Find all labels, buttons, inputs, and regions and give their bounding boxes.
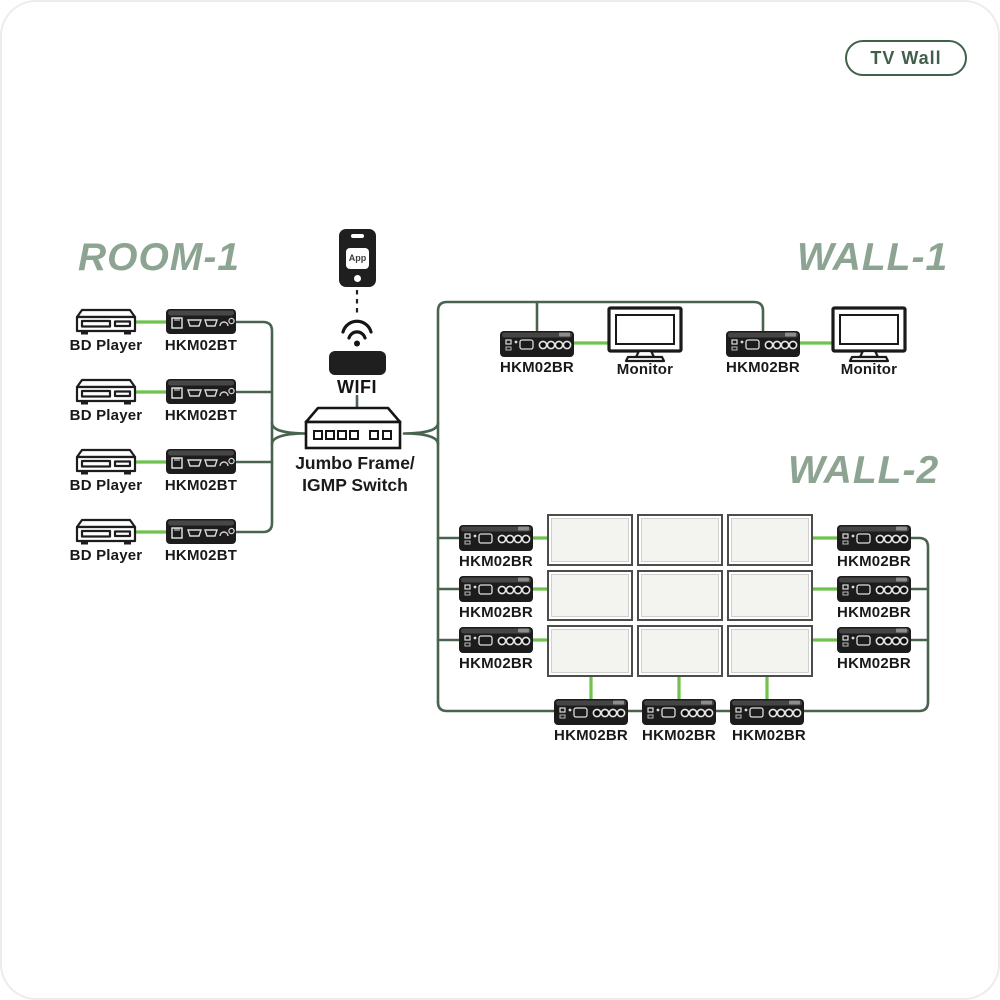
hkm02bt-label: HKM02BT <box>153 477 249 494</box>
video-wall-panel <box>637 625 723 677</box>
monitor-icon <box>607 306 683 364</box>
video-wall-panel-screen <box>551 574 629 618</box>
bd-player-icon <box>73 305 139 339</box>
hkm02br-label: HKM02BR <box>631 727 727 744</box>
hkm02bt-transmitter-icon <box>165 518 237 545</box>
video-wall-panel <box>727 570 813 622</box>
video-wall-panel-screen <box>731 574 809 618</box>
video-wall-panel <box>637 514 723 566</box>
hkm02bt-transmitter-icon <box>165 308 237 335</box>
wall1-title: WALL-1 <box>797 236 948 280</box>
bd-player-label: BD Player <box>58 477 154 494</box>
hkm02bt-label: HKM02BT <box>153 547 249 564</box>
hkm02br-receiver-icon <box>458 575 534 603</box>
monitor-label: Monitor <box>821 361 917 378</box>
monitor-label: Monitor <box>597 361 693 378</box>
hkm02br-receiver-icon <box>641 698 717 726</box>
hkm02br-receiver-icon <box>836 524 912 552</box>
bd-player-label: BD Player <box>58 547 154 564</box>
connection-wires <box>0 0 1000 1000</box>
switch-label-line1: Jumbo Frame/ <box>295 453 415 473</box>
video-wall-panel-screen <box>641 629 719 673</box>
bd-player-icon <box>73 375 139 409</box>
hkm02br-label: HKM02BR <box>448 553 544 570</box>
video-wall-panel-screen <box>731 518 809 562</box>
hkm02br-label: HKM02BR <box>448 604 544 621</box>
video-wall-grid <box>547 514 813 677</box>
video-wall-panel-screen <box>641 574 719 618</box>
diagram-canvas: TV Wall ROOM-1 WALL-1 WALL-2 BD Player H… <box>0 0 1000 1000</box>
video-wall-panel <box>547 625 633 677</box>
video-wall-panel-screen <box>731 629 809 673</box>
hkm02br-receiver-icon <box>725 330 801 358</box>
switch-label-line2: IGMP Switch <box>302 475 408 495</box>
wifi-router-icon <box>329 351 386 375</box>
switch-label: Jumbo Frame/ IGMP Switch <box>280 452 430 496</box>
hkm02br-label: HKM02BR <box>826 553 922 570</box>
monitor-icon <box>831 306 907 364</box>
phone-home-button <box>354 275 361 282</box>
hkm02br-label: HKM02BR <box>489 359 585 376</box>
video-wall-panel-screen <box>641 518 719 562</box>
tv-wall-badge-label: TV Wall <box>870 48 941 69</box>
tv-wall-badge: TV Wall <box>845 40 967 76</box>
hkm02br-receiver-icon <box>458 524 534 552</box>
hkm02br-label: HKM02BR <box>826 604 922 621</box>
hkm02br-label: HKM02BR <box>448 655 544 672</box>
smartphone-icon: App <box>339 229 376 287</box>
hkm02bt-label: HKM02BT <box>153 337 249 354</box>
app-button: App <box>346 248 369 269</box>
room1-title: ROOM-1 <box>78 236 240 280</box>
bd-player-label: BD Player <box>58 407 154 424</box>
wall2-title: WALL-2 <box>788 449 939 493</box>
bd-player-label: BD Player <box>58 337 154 354</box>
phone-speaker-slot <box>351 234 364 238</box>
hkm02br-receiver-icon <box>836 626 912 654</box>
hkm02br-label: HKM02BR <box>543 727 639 744</box>
hkm02bt-label: HKM02BT <box>153 407 249 424</box>
hkm02br-receiver-icon <box>836 575 912 603</box>
hkm02br-receiver-icon <box>553 698 629 726</box>
bd-player-icon <box>73 515 139 549</box>
bd-player-icon <box>73 445 139 479</box>
hkm02br-receiver-icon <box>499 330 575 358</box>
video-wall-panel-screen <box>551 629 629 673</box>
hkm02bt-transmitter-icon <box>165 378 237 405</box>
wifi-label: WIFI <box>309 377 405 398</box>
hkm02bt-transmitter-icon <box>165 448 237 475</box>
video-wall-panel <box>547 570 633 622</box>
network-switch-icon <box>300 403 410 453</box>
hkm02br-receiver-icon <box>729 698 805 726</box>
hkm02br-label: HKM02BR <box>826 655 922 672</box>
hkm02br-label: HKM02BR <box>715 359 811 376</box>
wifi-signal-icon <box>335 315 379 349</box>
video-wall-panel <box>727 625 813 677</box>
video-wall-panel <box>637 570 723 622</box>
video-wall-panel <box>547 514 633 566</box>
hkm02br-label: HKM02BR <box>721 727 817 744</box>
hkm02br-receiver-icon <box>458 626 534 654</box>
video-wall-panel-screen <box>551 518 629 562</box>
wire-room1-bus-stubs <box>236 392 272 462</box>
video-wall-panel <box>727 514 813 566</box>
